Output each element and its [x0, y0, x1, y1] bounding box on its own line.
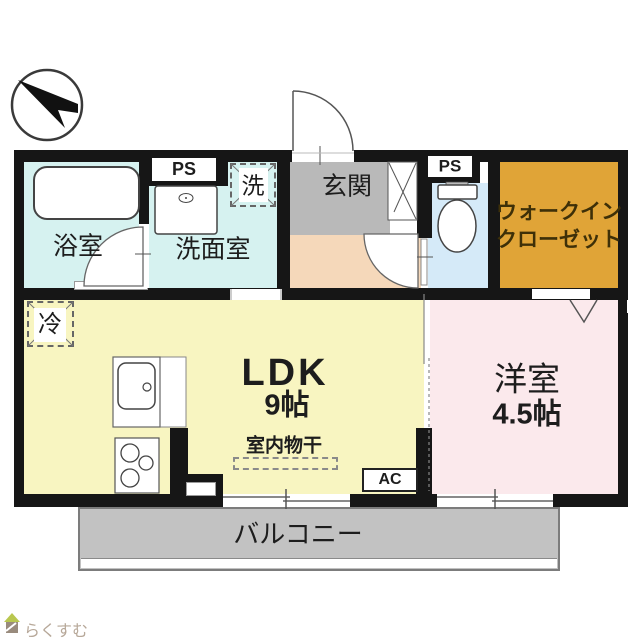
- entrance-label: 玄関: [322, 175, 372, 200]
- toilet-floor: [428, 183, 488, 291]
- entrance-door-opening: [292, 150, 354, 162]
- air-conditioner-box: AC: [362, 468, 418, 492]
- floor-plan: AC 浴室 洗面室 洗 PS 玄関 PS ウォークイン クローゼット 冷 LDK…: [0, 0, 640, 640]
- ldk-label: LDK: [241, 354, 328, 392]
- balcony-edge-strip: [81, 558, 557, 568]
- washroom-label: 洗面室: [175, 238, 250, 263]
- shoe-cabinet-icon: [388, 162, 417, 220]
- pipe-space-right-label: PS: [439, 158, 462, 175]
- ldk-door-opening: [230, 289, 282, 300]
- walk-in-closet-label-line1: ウォークイン: [496, 202, 622, 223]
- walk-in-closet-label-line2: クローゼット: [496, 230, 622, 251]
- balcony-label: バルコニー: [233, 521, 362, 547]
- walk-in-closet-floor: [500, 162, 618, 288]
- ldk-window-opening: [223, 494, 350, 507]
- logo-house-icon: [4, 613, 20, 633]
- compass-icon: [12, 70, 82, 140]
- bathroom-label: 浴室: [53, 235, 103, 260]
- western-room-size-label: 4.5帖: [492, 401, 561, 430]
- air-conditioner-label: AC: [378, 471, 401, 489]
- ldk-floor: [24, 300, 424, 494]
- wall-washroom-entrance: [277, 162, 290, 300]
- refrigerator-label: 冷: [38, 313, 62, 337]
- indoor-drying-label: 室内物干: [246, 437, 322, 456]
- ldk-size-label: 9帖: [264, 392, 309, 421]
- closet-opening: [532, 289, 590, 299]
- wall-ldk-western-stub: [416, 428, 432, 498]
- bathroom-threshold: [74, 281, 148, 290]
- wall-left: [14, 150, 24, 507]
- wall-toilet-closet: [488, 150, 500, 300]
- kitchen-wall-notch: [186, 482, 216, 496]
- right-wall-notch: [627, 300, 638, 313]
- indoor-drying-bracket: [233, 457, 338, 470]
- washing-machine-label: 洗: [242, 175, 265, 198]
- pipe-space-top-label: PS: [172, 160, 196, 178]
- western-window-opening: [437, 494, 553, 507]
- logo-text: らくすむ: [24, 617, 88, 640]
- hallway-floor: [290, 235, 421, 291]
- bathroom-door-opening: [139, 224, 149, 288]
- bathroom-floor: [24, 162, 140, 291]
- western-room-label: 洋室: [494, 363, 560, 396]
